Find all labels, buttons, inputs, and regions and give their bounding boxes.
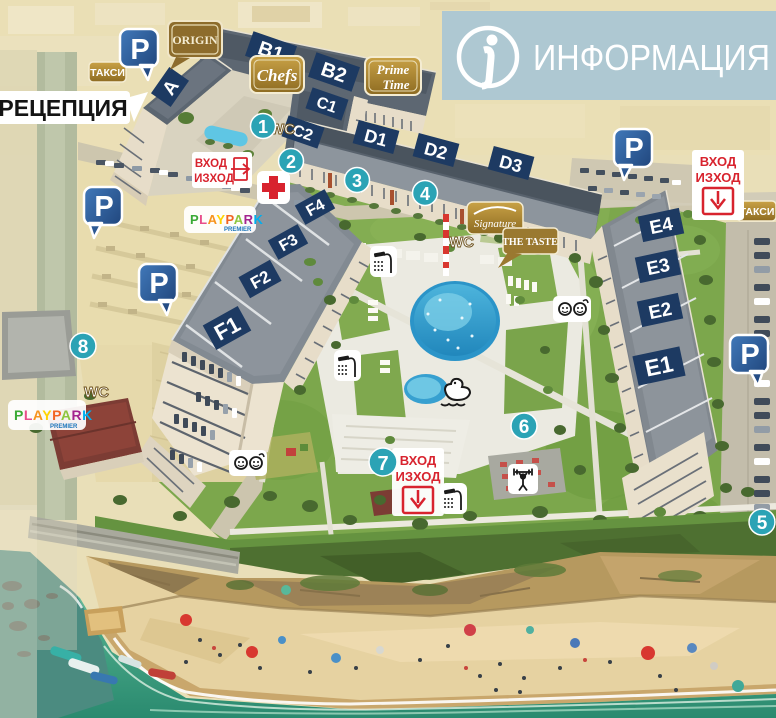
svg-text:P: P [740,339,759,371]
svg-text:8: 8 [78,337,89,358]
svg-text:WC: WC [84,384,109,401]
svg-text:P: P [130,34,149,66]
svg-text:PREMIER: PREMIER [50,424,78,430]
svg-text:P: P [94,191,113,223]
svg-text:P: P [624,133,643,165]
svg-text:2: 2 [286,152,296,172]
svg-text:PLAYPARK: PLAYPARK [14,407,93,423]
svg-text:7: 7 [377,453,388,475]
svg-text:ИЗХОД: ИЗХОД [695,170,741,185]
svg-text:ВХОД: ВХОД [400,453,437,468]
svg-text:3: 3 [352,171,362,191]
svg-text:ИНФОРМАЦИЯ: ИНФОРМАЦИЯ [533,37,770,78]
svg-text:ВХОД: ВХОД [195,158,227,170]
svg-text:THE TASTE: THE TASTE [502,237,558,248]
svg-text:Time: Time [383,77,410,92]
svg-text:P: P [149,268,168,300]
svg-text:PLAYPARK: PLAYPARK [190,212,264,227]
svg-text:WC: WC [449,234,474,251]
svg-text:ИЗХОД: ИЗХОД [194,173,234,185]
svg-text:Prime: Prime [377,62,410,77]
svg-text:1: 1 [258,117,268,137]
svg-text:Chefs: Chefs [257,66,298,85]
svg-text:ТАКСИ: ТАКСИ [90,67,125,79]
svg-text:PREMIER: PREMIER [224,227,252,233]
svg-text:ТАКСИ: ТАКСИ [740,206,775,218]
svg-text:ВХОД: ВХОД [700,154,737,169]
svg-text:4: 4 [420,184,430,204]
svg-text:ИЗХОД: ИЗХОД [395,469,441,484]
svg-text:5: 5 [757,513,768,534]
svg-text:6: 6 [519,417,530,438]
svg-text:РЕЦЕПЦИЯ: РЕЦЕПЦИЯ [0,95,128,121]
svg-text:ORIGIN: ORIGIN [172,33,218,47]
